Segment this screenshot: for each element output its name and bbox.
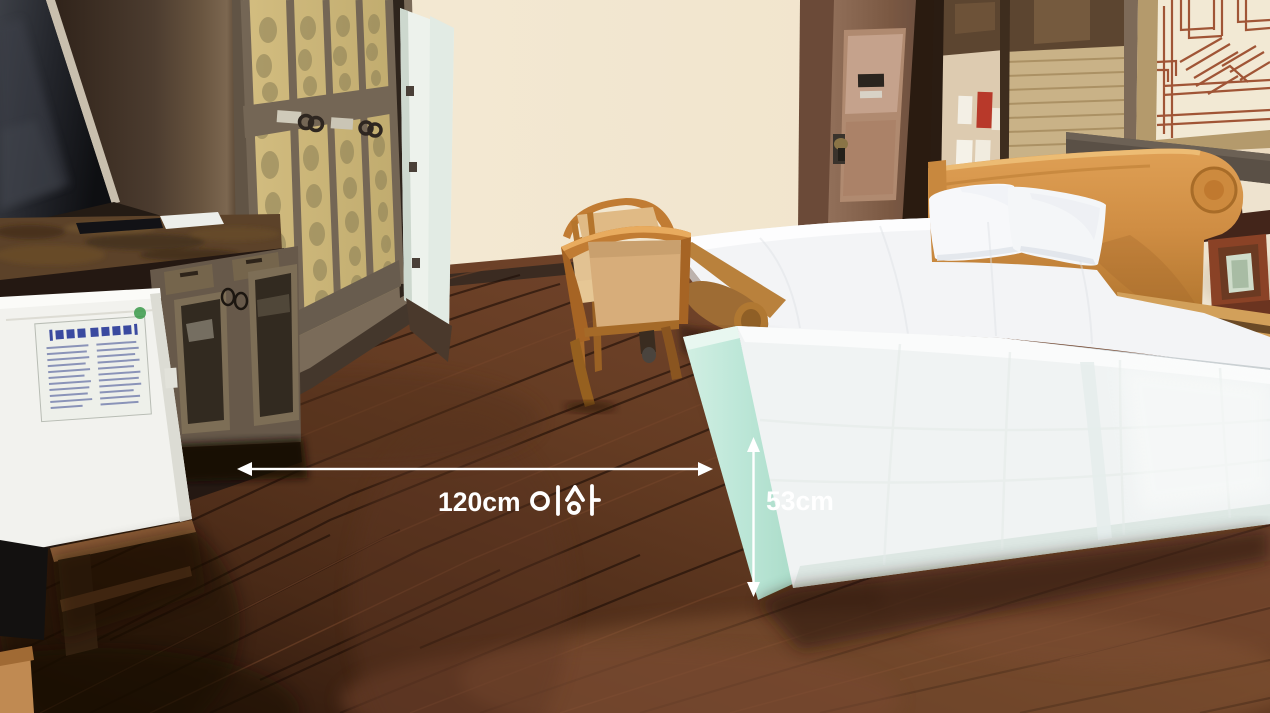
svg-text:53cm: 53cm — [766, 486, 834, 516]
svg-text:120cm: 120cm — [438, 487, 521, 517]
